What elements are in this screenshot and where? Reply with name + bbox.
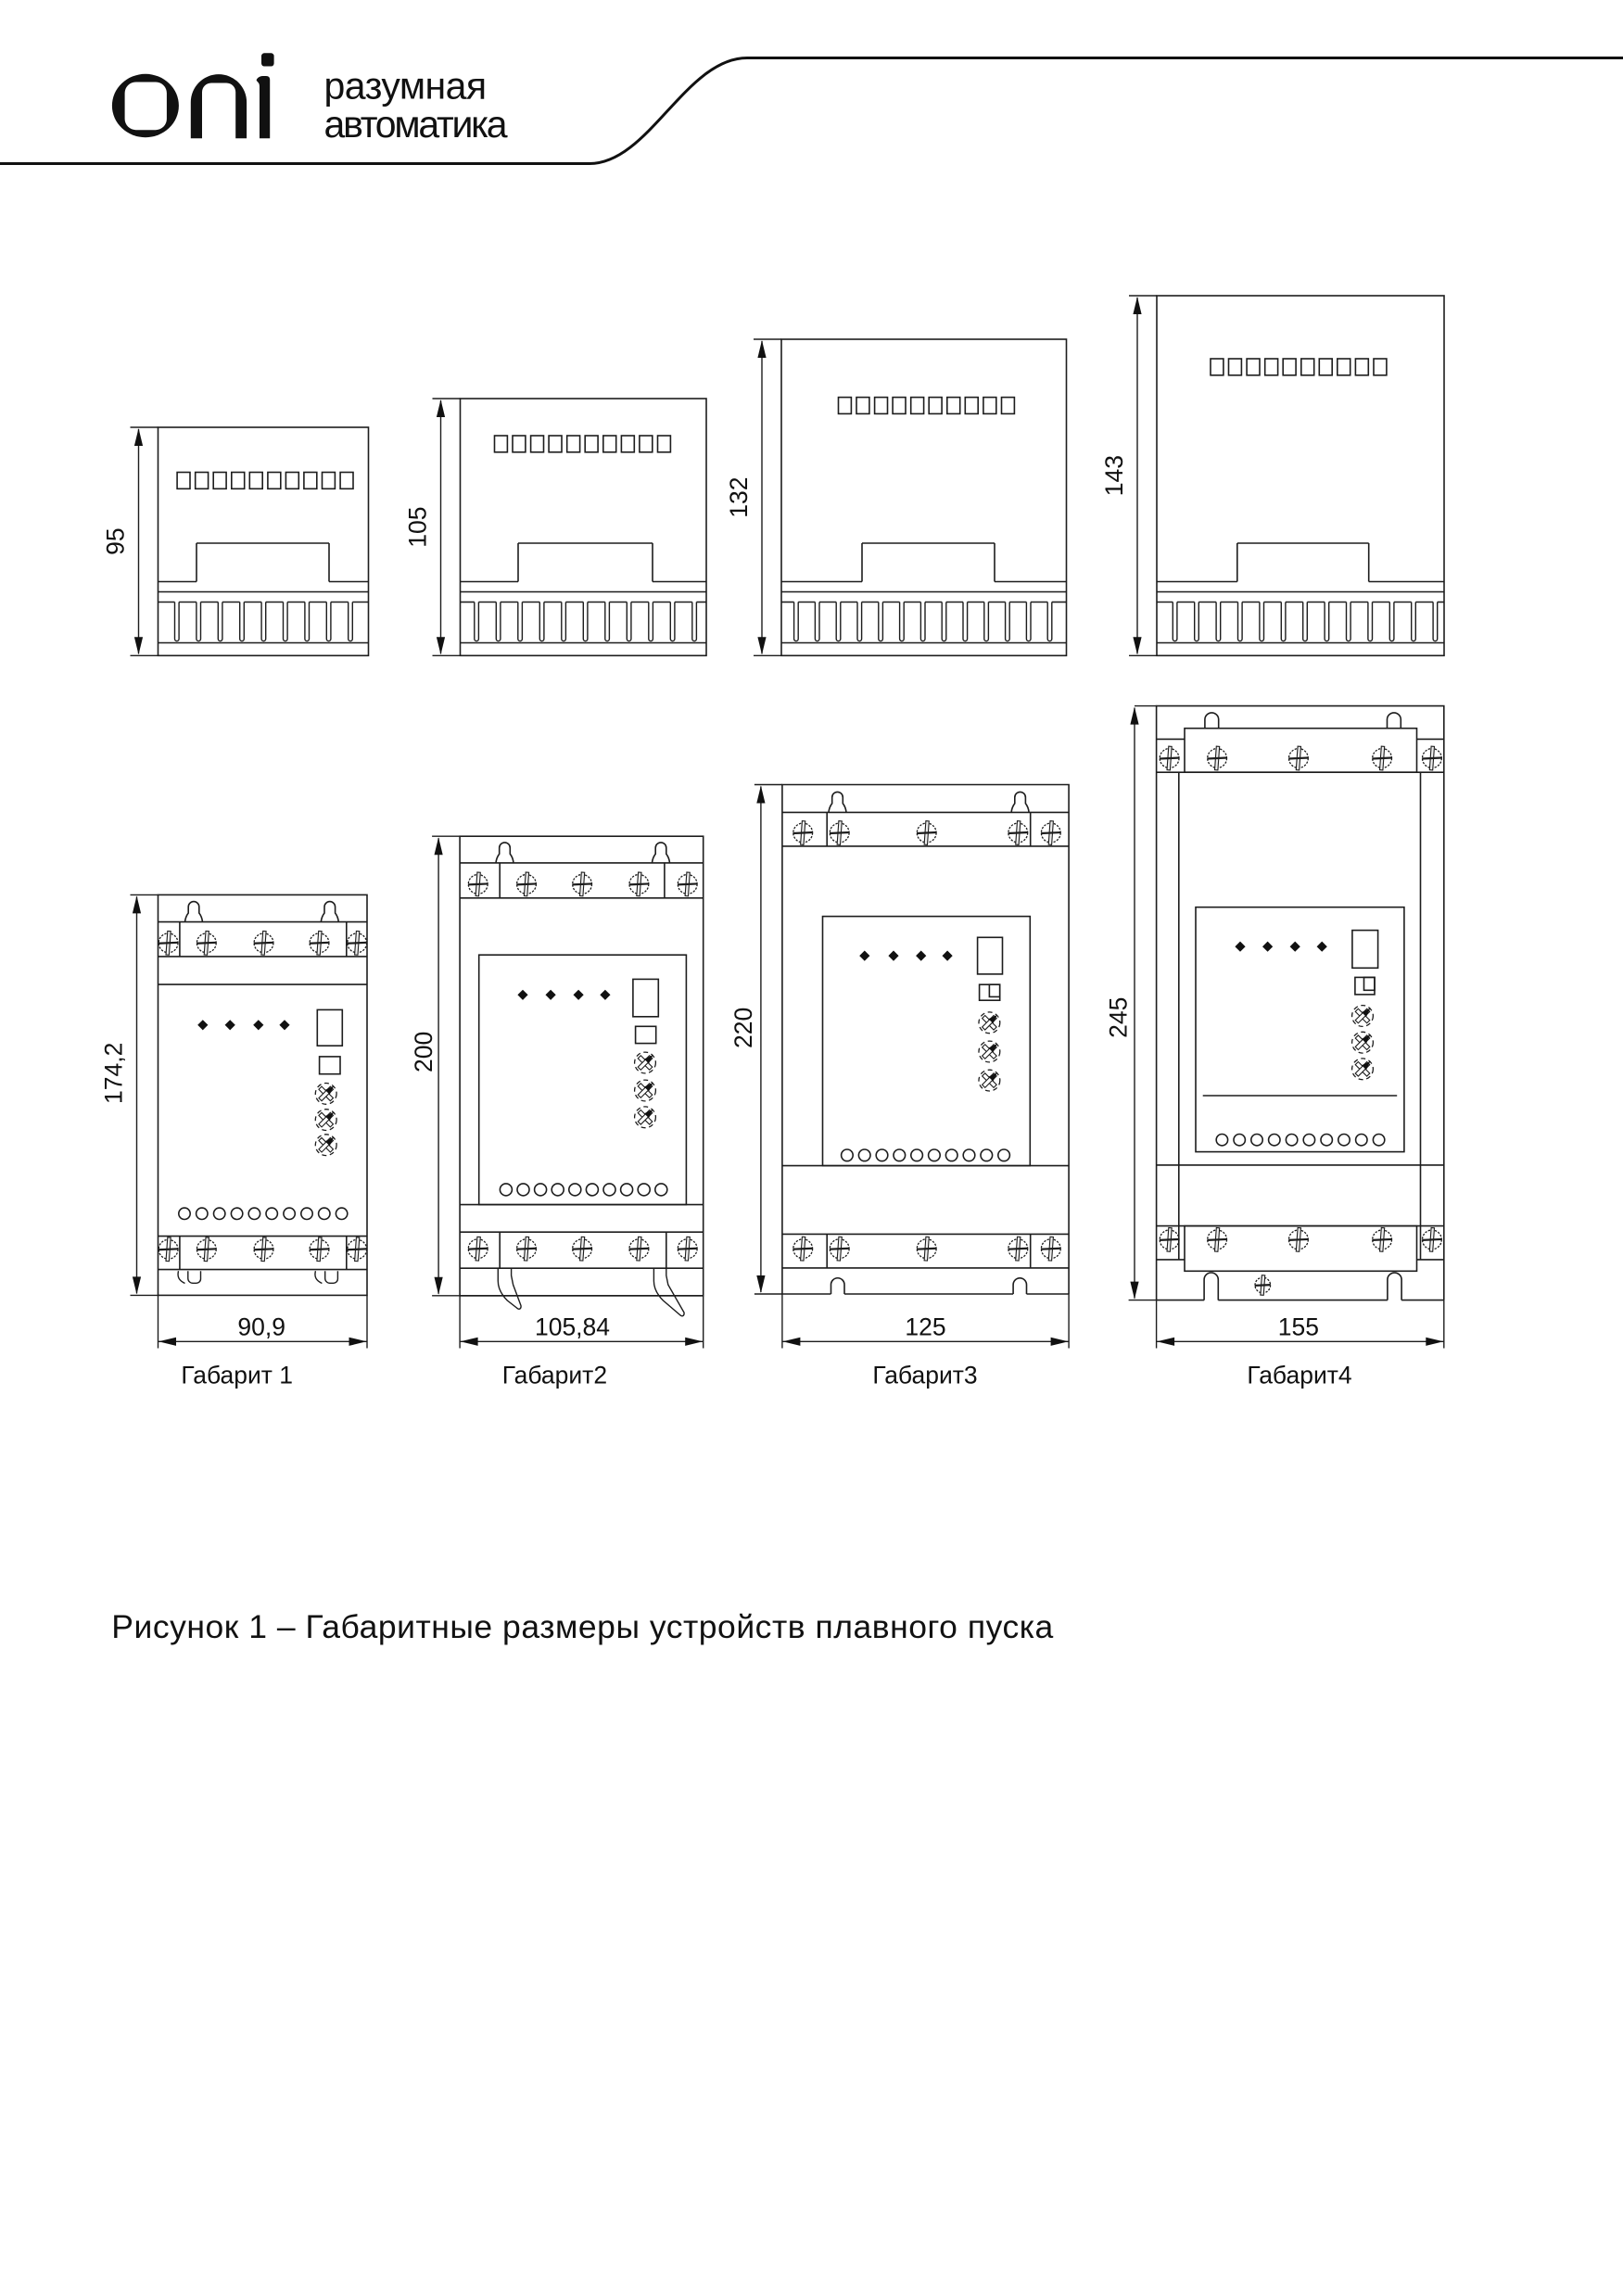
svg-text:разумная: разумная	[324, 65, 488, 108]
svg-text:Рисунок 1 – Габаритные размеры: Рисунок 1 – Габаритные размеры устройств…	[111, 1608, 1053, 1645]
svg-text:200: 200	[410, 1032, 437, 1072]
svg-text:105,84: 105,84	[535, 1313, 610, 1340]
svg-text:Габарит 1: Габарит 1	[181, 1361, 293, 1389]
svg-text:132: 132	[725, 476, 753, 517]
svg-text:105: 105	[404, 506, 432, 547]
svg-text:Габарит3: Габарит3	[872, 1361, 977, 1389]
svg-text:автоматика: автоматика	[324, 103, 508, 146]
svg-text:245: 245	[1105, 997, 1133, 1038]
svg-text:95: 95	[102, 527, 130, 554]
svg-text:125: 125	[905, 1313, 945, 1340]
svg-text:90,9: 90,9	[237, 1313, 285, 1340]
svg-text:Габарит4: Габарит4	[1247, 1361, 1351, 1389]
svg-text:Габарит2: Габарит2	[502, 1361, 607, 1389]
svg-text:220: 220	[729, 1008, 757, 1048]
svg-text:155: 155	[1278, 1313, 1319, 1340]
svg-text:143: 143	[1100, 455, 1128, 496]
svg-text:174,2: 174,2	[100, 1043, 128, 1104]
